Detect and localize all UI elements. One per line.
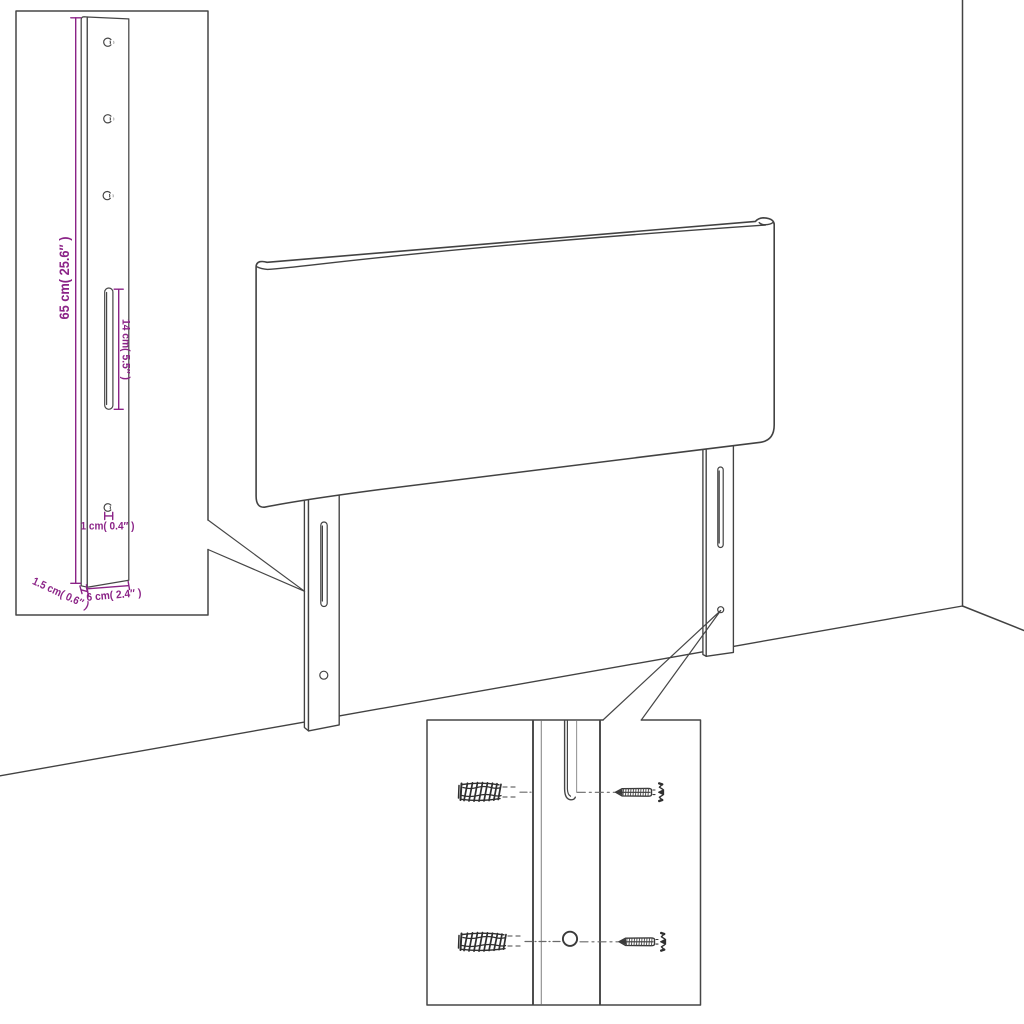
svg-text:14 cm( 5.5″ ): 14 cm( 5.5″ ) bbox=[119, 319, 131, 380]
svg-text:65 cm( 25.6″ ): 65 cm( 25.6″ ) bbox=[57, 237, 72, 320]
svg-text:1 cm( 0.4″ ): 1 cm( 0.4″ ) bbox=[81, 521, 135, 533]
